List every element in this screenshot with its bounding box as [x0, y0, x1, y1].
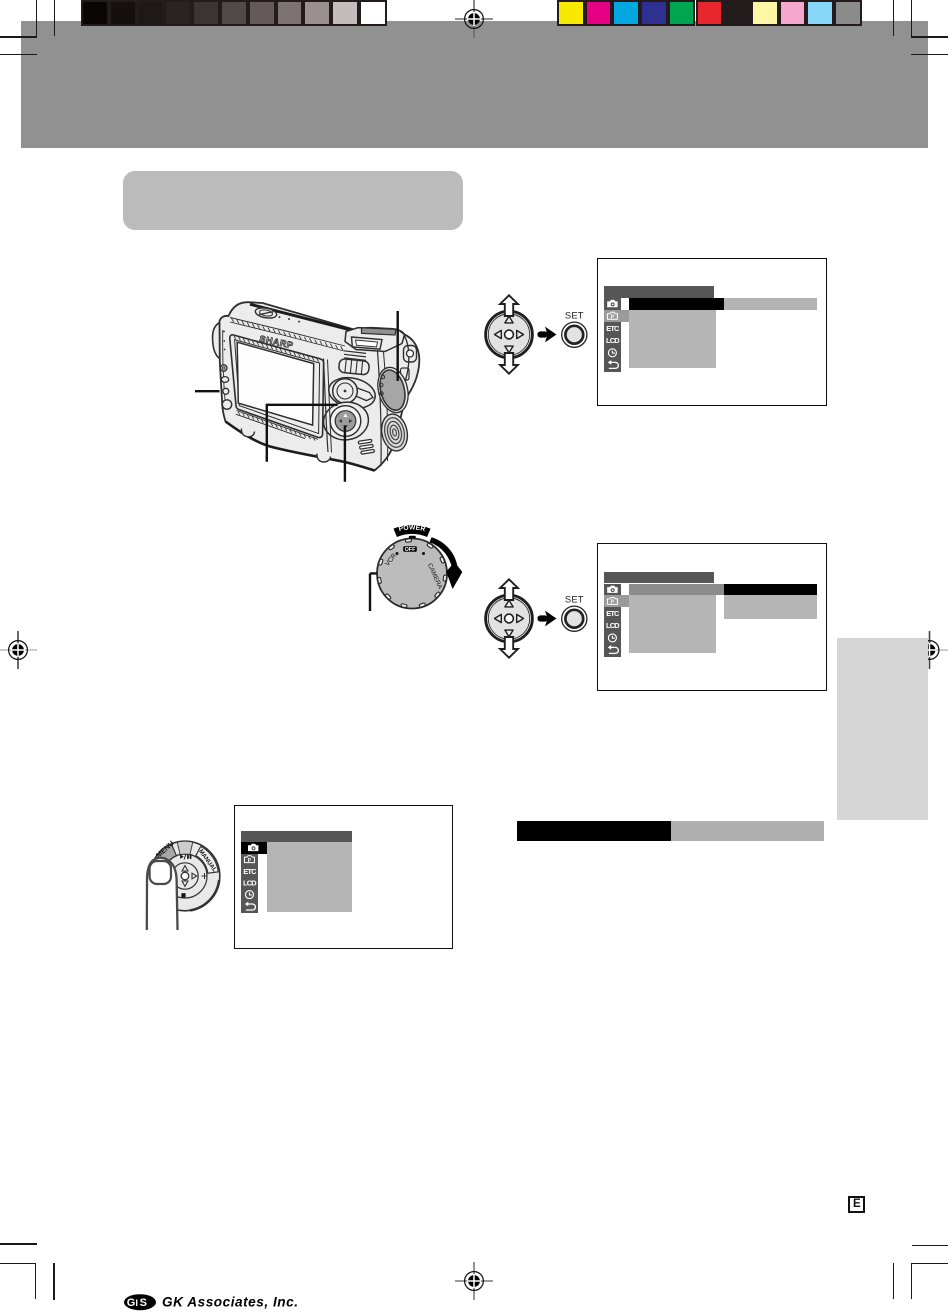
svg-text:LCD: LCD — [606, 621, 620, 630]
svg-text:G: G — [127, 1297, 136, 1309]
svg-text:OFF: OFF — [405, 547, 416, 553]
svg-text:SET: SET — [565, 310, 584, 321]
svg-text:ETC: ETC — [607, 324, 621, 333]
svg-text:ETC: ETC — [243, 867, 257, 876]
svg-text:GK Associates, Inc.: GK Associates, Inc. — [162, 1295, 298, 1310]
svg-text:LCD: LCD — [243, 879, 257, 888]
svg-text:S: S — [140, 1297, 147, 1309]
svg-text:ETC: ETC — [607, 609, 621, 618]
svg-text:l: l — [135, 1298, 138, 1309]
svg-text:SET: SET — [565, 594, 584, 605]
svg-text:LCD: LCD — [606, 336, 620, 345]
